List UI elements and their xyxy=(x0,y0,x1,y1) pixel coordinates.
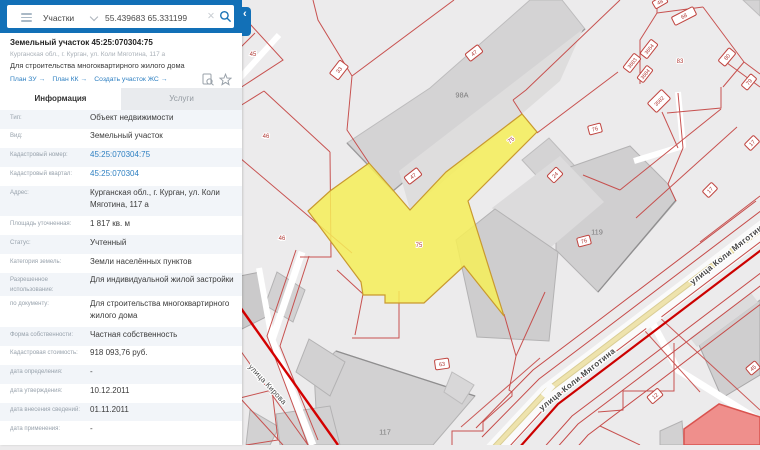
svg-text:45: 45 xyxy=(250,52,257,58)
svg-text:46: 46 xyxy=(279,236,286,242)
svg-text:98А: 98А xyxy=(455,91,468,100)
svg-text:83: 83 xyxy=(677,59,684,65)
svg-text:63: 63 xyxy=(439,362,446,369)
svg-text:117: 117 xyxy=(379,428,391,437)
svg-text:46: 46 xyxy=(263,134,270,140)
svg-text:75: 75 xyxy=(416,243,423,249)
svg-text:119: 119 xyxy=(591,228,603,237)
